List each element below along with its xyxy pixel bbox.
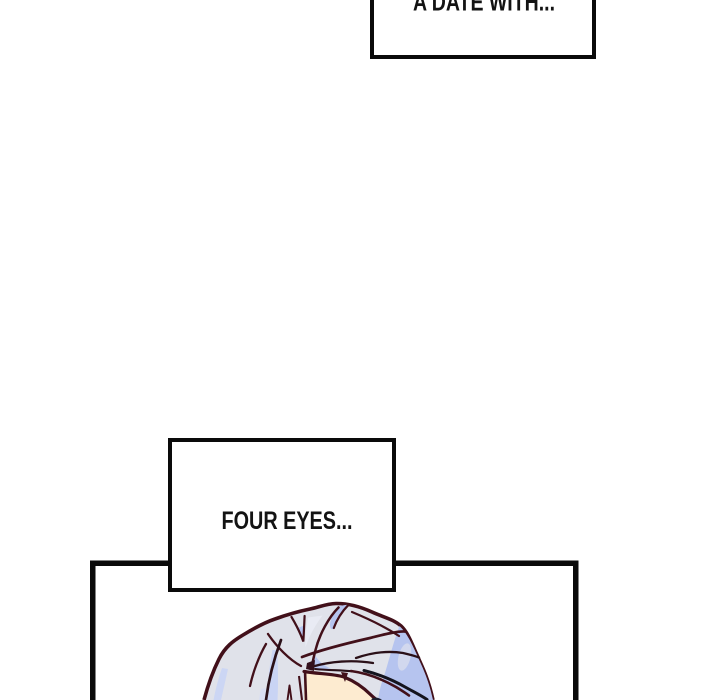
svg-text:FOUR EYES...: FOUR EYES... <box>222 507 353 535</box>
svg-text:A DATE WITH...: A DATE WITH... <box>413 0 555 17</box>
